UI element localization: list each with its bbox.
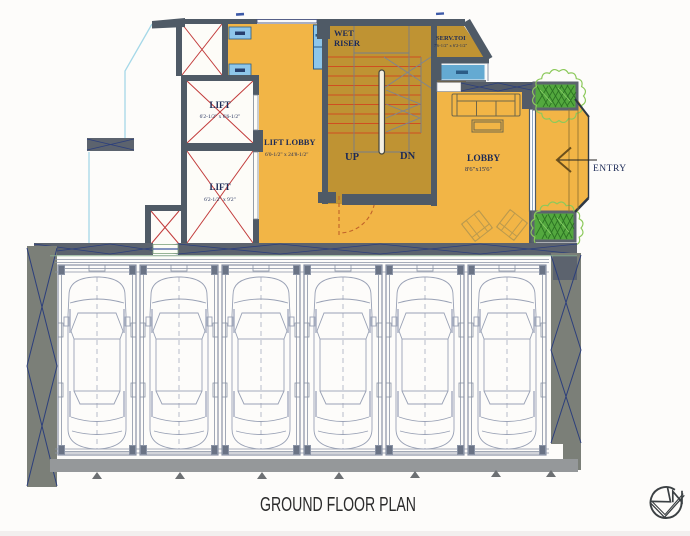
svg-text:LIFT: LIFT [209, 182, 230, 192]
svg-text:SERV.TOI: SERV.TOI [436, 35, 466, 42]
svg-text:LIFT LOBBY: LIFT LOBBY [264, 137, 316, 147]
svg-text:RISER: RISER [334, 38, 361, 48]
svg-text:6'0-1/2" x 24'8-1/2": 6'0-1/2" x 24'8-1/2" [265, 152, 308, 158]
svg-text:WET: WET [334, 28, 354, 38]
svg-text:7'6-1/2" x 6'2-1/2": 7'6-1/2" x 6'2-1/2" [434, 43, 467, 48]
svg-text:6'2-1/2" x 6'6-1/2": 6'2-1/2" x 6'6-1/2" [200, 114, 241, 120]
svg-text:DN: DN [400, 151, 416, 162]
svg-text:GROUND FLOOR PLAN: GROUND FLOOR PLAN [260, 494, 416, 516]
svg-text:ENTRY: ENTRY [593, 164, 627, 174]
svg-text:LIFT: LIFT [209, 100, 230, 110]
svg-text:8'6"x15'6": 8'6"x15'6" [465, 166, 492, 173]
svg-text:LOBBY: LOBBY [467, 154, 500, 164]
svg-text:6'2-1/2" x 9'2": 6'2-1/2" x 9'2" [204, 197, 236, 203]
svg-text:UP: UP [345, 152, 360, 163]
